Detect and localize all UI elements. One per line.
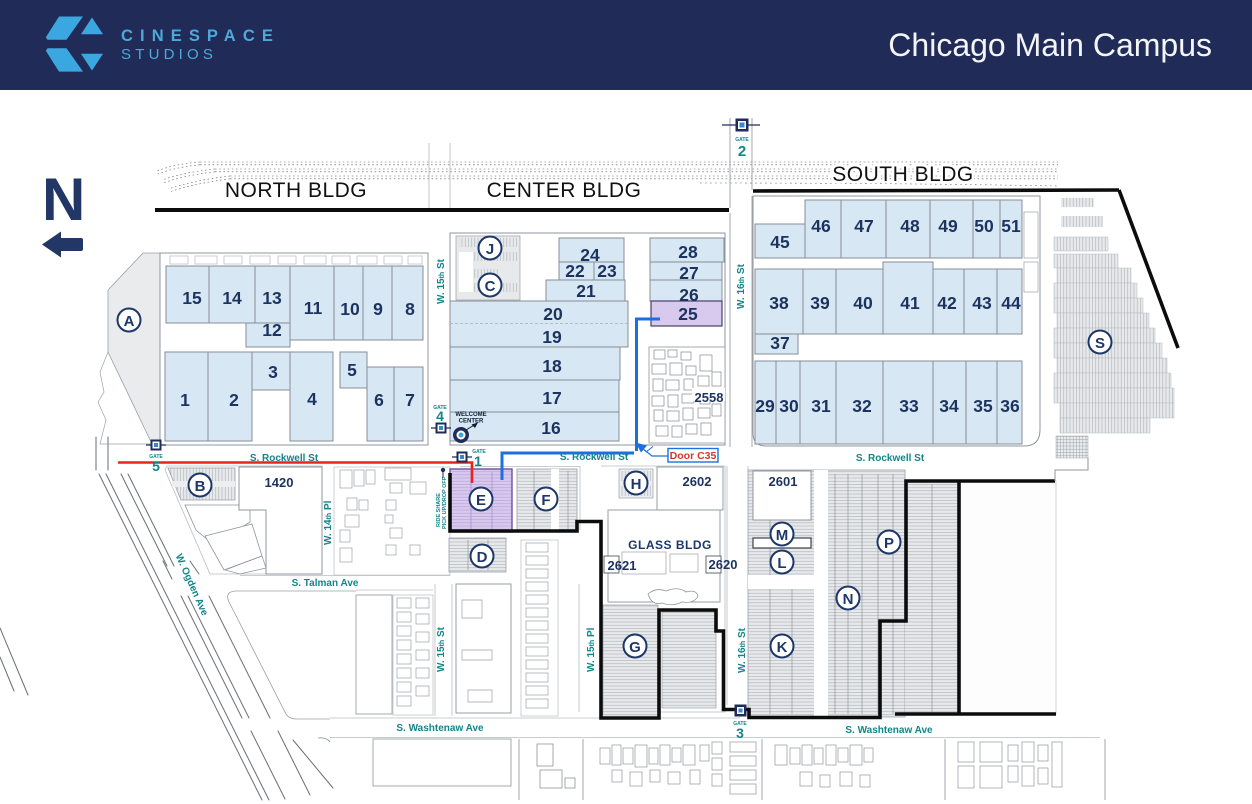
svg-text:S: S [1095, 335, 1105, 352]
svg-text:1420: 1420 [265, 475, 294, 490]
svg-text:26: 26 [679, 285, 699, 305]
svg-text:28: 28 [678, 242, 698, 262]
svg-text:F: F [541, 492, 550, 509]
svg-text:PICK UP/DROP OFF: PICK UP/DROP OFF [442, 476, 448, 529]
svg-text:N: N [42, 166, 85, 233]
svg-text:29: 29 [755, 396, 775, 416]
svg-text:48: 48 [900, 216, 920, 236]
svg-text:34: 34 [939, 396, 959, 416]
svg-text:S. Talman Ave: S. Talman Ave [292, 578, 359, 589]
svg-text:30: 30 [779, 396, 799, 416]
svg-text:3: 3 [268, 362, 278, 382]
svg-text:S. Rockwell St: S. Rockwell St [250, 453, 319, 464]
svg-text:7: 7 [405, 390, 415, 410]
svg-text:W. 15th St: W. 15th St [436, 258, 447, 304]
svg-text:9: 9 [373, 299, 383, 319]
svg-text:42: 42 [937, 293, 957, 313]
svg-text:38: 38 [769, 293, 789, 313]
svg-text:41: 41 [900, 293, 920, 313]
svg-text:1: 1 [474, 453, 482, 469]
svg-text:37: 37 [770, 333, 789, 353]
svg-text:2558: 2558 [695, 390, 724, 405]
svg-text:47: 47 [854, 216, 873, 236]
svg-text:CINESPACE: CINESPACE [121, 27, 280, 45]
svg-text:43: 43 [972, 293, 992, 313]
svg-text:2: 2 [229, 390, 239, 410]
svg-text:20: 20 [543, 304, 563, 324]
svg-text:STUDIOS: STUDIOS [121, 46, 217, 63]
svg-text:4: 4 [307, 389, 317, 409]
svg-text:44: 44 [1001, 293, 1021, 313]
svg-text:M: M [776, 527, 789, 544]
svg-text:40: 40 [853, 293, 873, 313]
svg-text:13: 13 [262, 288, 282, 308]
svg-text:K: K [777, 639, 788, 656]
svg-text:D: D [477, 549, 488, 566]
svg-text:2621: 2621 [608, 558, 637, 573]
svg-text:51: 51 [1001, 216, 1021, 236]
svg-text:GLASS BLDG: GLASS BLDG [628, 538, 712, 552]
svg-text:S. Rockwell St: S. Rockwell St [560, 452, 629, 463]
svg-text:16: 16 [541, 418, 561, 438]
svg-text:E: E [476, 492, 486, 509]
svg-text:19: 19 [542, 327, 562, 347]
svg-text:W. 16th St: W. 16th St [736, 263, 747, 309]
svg-text:J: J [486, 241, 494, 258]
svg-text:8: 8 [405, 299, 415, 319]
svg-text:21: 21 [576, 281, 596, 301]
svg-text:11: 11 [304, 298, 323, 318]
svg-text:35: 35 [973, 396, 993, 416]
svg-text:W. 16th St: W. 16th St [737, 627, 748, 673]
svg-text:4: 4 [436, 408, 444, 424]
svg-text:22: 22 [565, 261, 585, 281]
svg-text:18: 18 [542, 356, 562, 376]
svg-text:S. Washtenaw Ave: S. Washtenaw Ave [845, 725, 933, 736]
svg-text:W. 15th Pl: W. 15th Pl [586, 627, 597, 672]
svg-text:49: 49 [938, 216, 958, 236]
svg-text:39: 39 [810, 293, 830, 313]
svg-text:2620: 2620 [709, 557, 738, 572]
svg-text:23: 23 [597, 261, 617, 281]
svg-text:5: 5 [152, 458, 160, 474]
svg-text:46: 46 [811, 216, 831, 236]
svg-text:CENTER BLDG: CENTER BLDG [487, 179, 642, 202]
svg-text:L: L [777, 555, 786, 572]
svg-text:25: 25 [678, 304, 698, 324]
svg-text:45: 45 [770, 232, 790, 252]
svg-text:WELCOME: WELCOME [455, 412, 486, 418]
svg-text:N: N [843, 591, 854, 608]
svg-text:CENTER: CENTER [459, 419, 484, 425]
svg-text:C: C [485, 278, 496, 295]
svg-text:2601: 2601 [769, 474, 798, 489]
svg-text:15: 15 [182, 288, 202, 308]
svg-text:6: 6 [374, 390, 384, 410]
svg-text:W. 14th Pl: W. 14th Pl [323, 500, 334, 545]
svg-text:2602: 2602 [683, 474, 712, 489]
svg-text:P: P [884, 535, 894, 552]
svg-text:H: H [631, 476, 642, 493]
svg-text:5: 5 [347, 360, 357, 380]
svg-text:1: 1 [180, 390, 190, 410]
svg-text:S. Washtenaw Ave: S. Washtenaw Ave [396, 723, 484, 734]
svg-text:SOUTH BLDG: SOUTH BLDG [832, 163, 974, 186]
svg-text:17: 17 [542, 388, 561, 408]
svg-text:27: 27 [679, 263, 698, 283]
svg-text:S. Rockwell St: S. Rockwell St [856, 453, 925, 464]
svg-text:A: A [124, 313, 135, 330]
svg-text:NORTH BLDG: NORTH BLDG [225, 179, 367, 202]
svg-text:14: 14 [222, 288, 242, 308]
svg-text:Door C35: Door C35 [670, 450, 717, 462]
svg-text:12: 12 [262, 320, 282, 340]
svg-text:10: 10 [340, 299, 360, 319]
svg-text:3: 3 [736, 725, 744, 741]
svg-text:36: 36 [1000, 396, 1020, 416]
svg-text:31: 31 [811, 396, 831, 416]
svg-text:Chicago Main Campus: Chicago Main Campus [888, 27, 1212, 63]
svg-text:G: G [629, 639, 641, 656]
svg-text:32: 32 [852, 396, 872, 416]
svg-text:B: B [195, 478, 206, 495]
svg-text:W. 15th St: W. 15th St [436, 626, 447, 672]
svg-text:33: 33 [899, 396, 919, 416]
svg-text:50: 50 [974, 216, 994, 236]
svg-text:2: 2 [738, 143, 746, 160]
